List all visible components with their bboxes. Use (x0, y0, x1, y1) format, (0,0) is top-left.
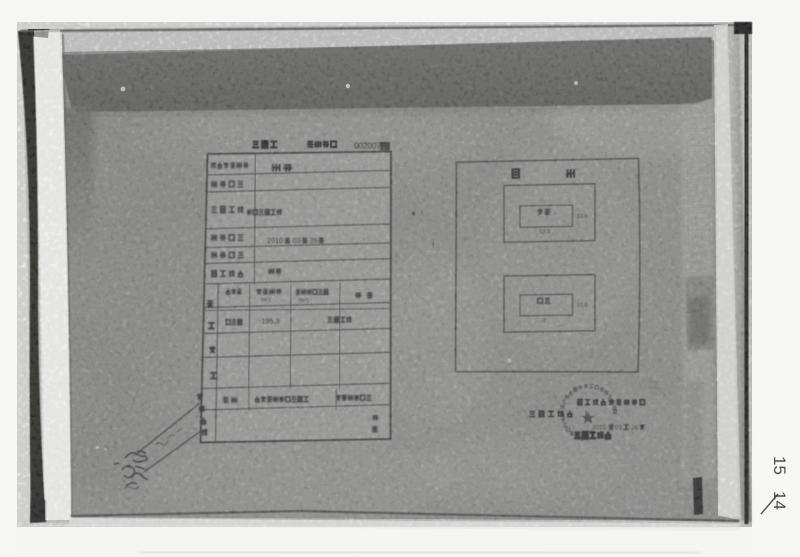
svg-text:15: 15 (770, 456, 789, 475)
